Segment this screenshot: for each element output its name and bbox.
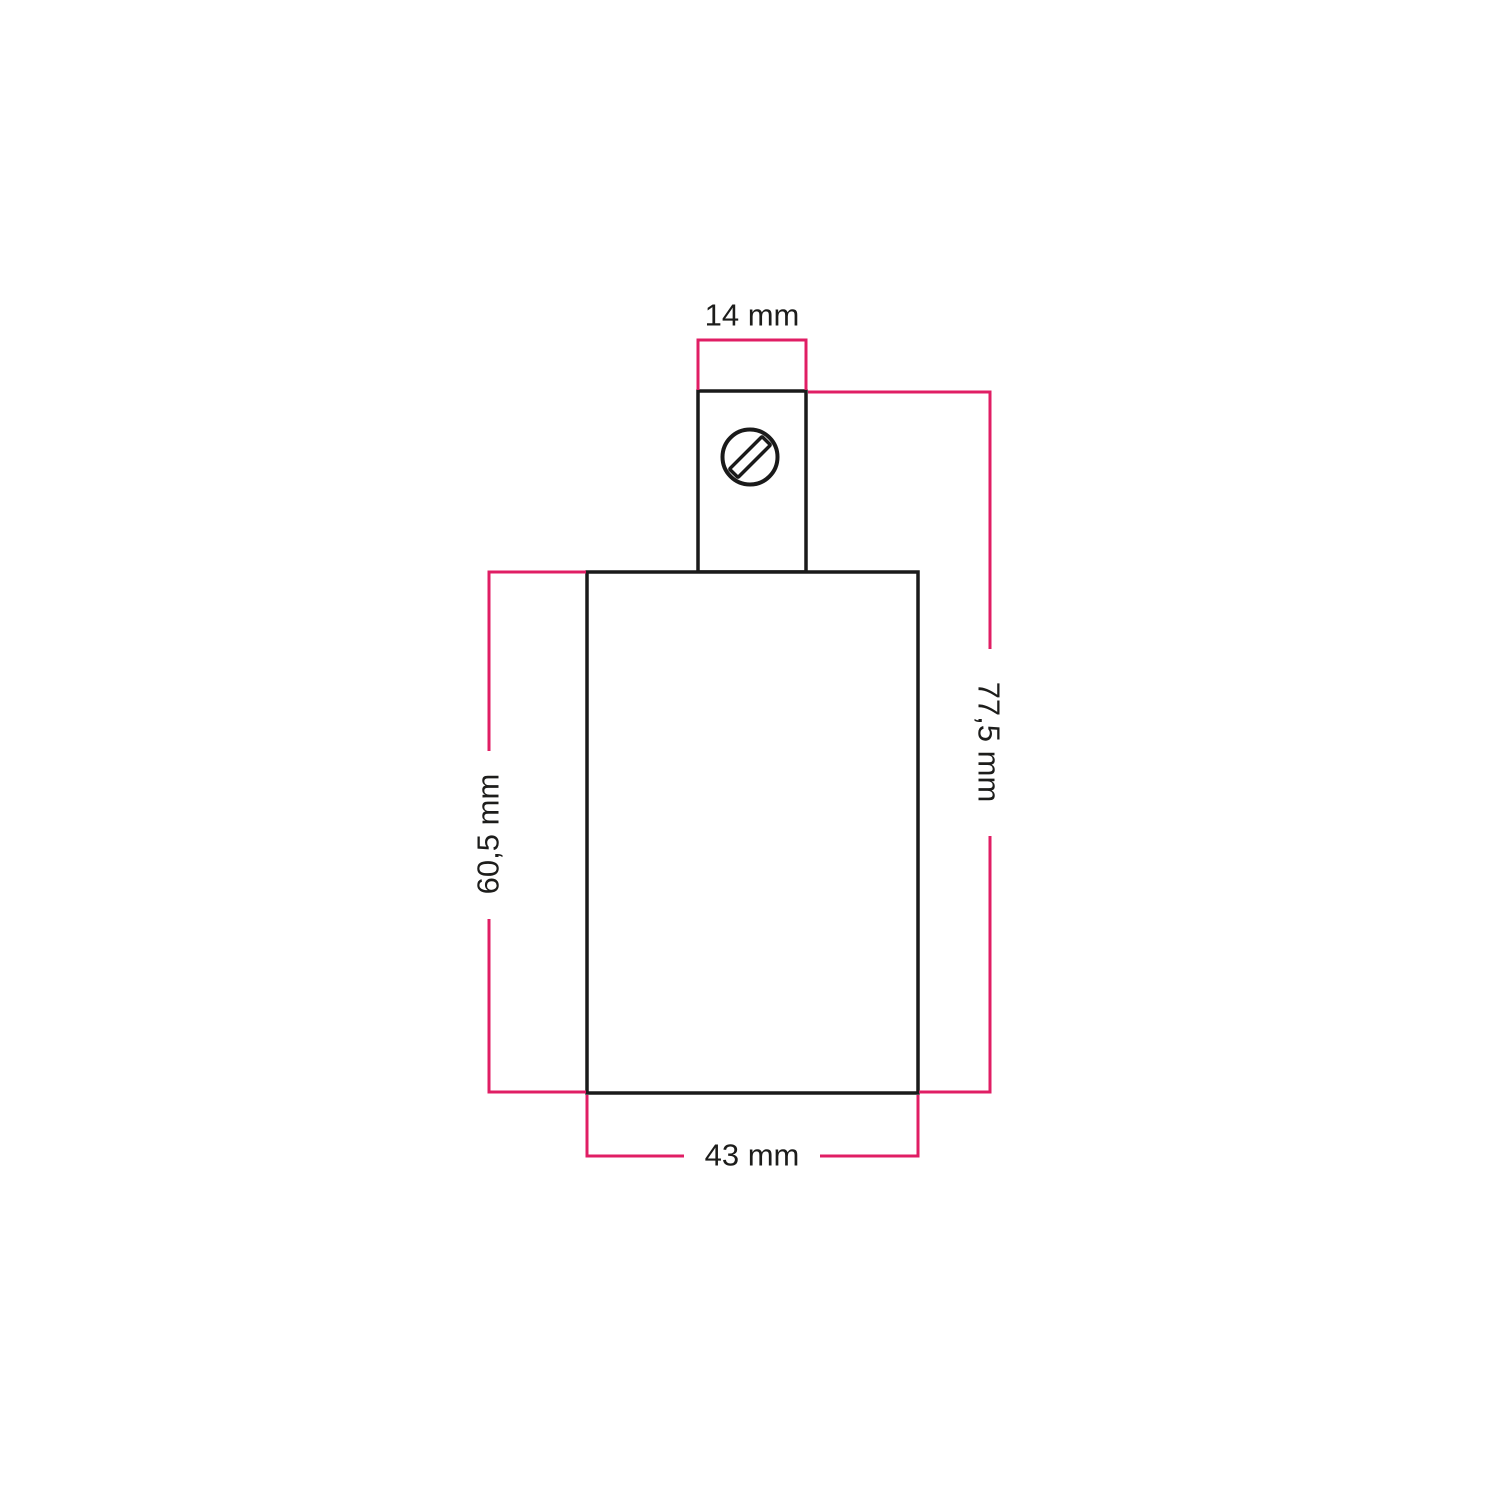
dimension-diagram: 14 mm 77,5 mm 60,5 mm 43 mm xyxy=(0,0,1500,1500)
diagram-svg: 14 mm 77,5 mm 60,5 mm 43 mm xyxy=(0,0,1500,1500)
body-height-label: 60,5 mm xyxy=(471,774,506,895)
cable-clamp-outline xyxy=(698,391,806,572)
body-width-label: 43 mm xyxy=(705,1138,800,1173)
clamp-width-label: 14 mm xyxy=(705,298,800,333)
total-height-label: 77,5 mm xyxy=(972,682,1007,803)
dimension-line-clamp-width xyxy=(698,340,806,390)
socket-body-outline xyxy=(587,572,918,1093)
